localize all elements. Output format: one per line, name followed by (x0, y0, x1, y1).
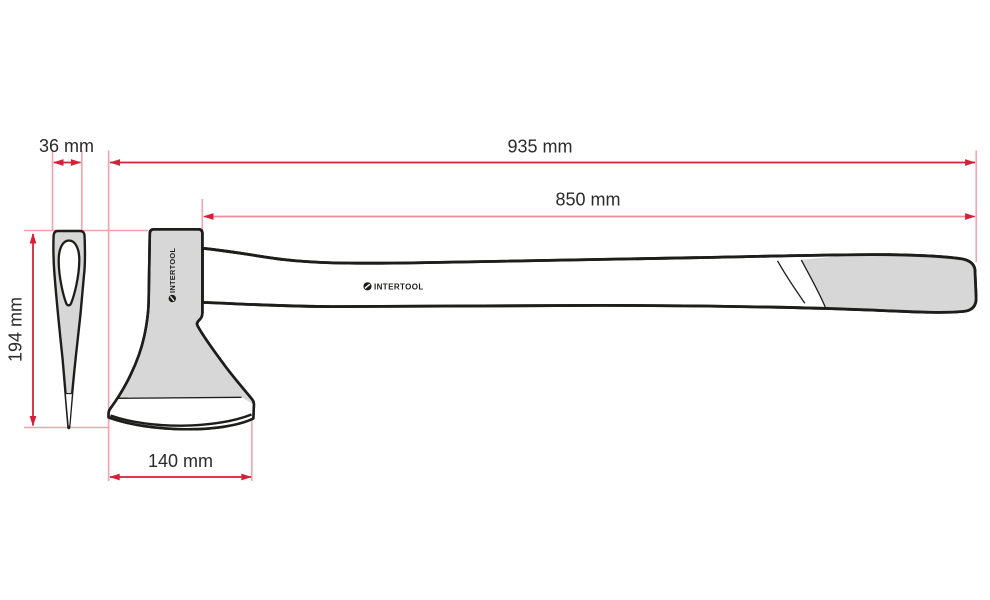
dimension-eye-width: 36 mm (39, 136, 94, 166)
arrowhead-left-icon (203, 213, 214, 220)
dimension-label-eye-width: 36 mm (39, 136, 94, 156)
dimension-label-blade-width: 140 mm (148, 451, 213, 471)
arrowhead-left-icon (53, 159, 64, 166)
arrowhead-up-icon (30, 233, 37, 244)
intertool-logo-text: INTERTOOL (374, 283, 424, 292)
arrowhead-down-icon (30, 416, 37, 427)
arrowhead-right-icon (965, 159, 976, 166)
dimension-handle-length: 850 mm (203, 190, 976, 220)
arrowhead-right-icon (71, 159, 82, 166)
arrowhead-right-icon (965, 213, 976, 220)
dimension-label-handle-length: 850 mm (555, 190, 620, 210)
dimension-label-head-height: 194 mm (6, 297, 26, 362)
axe-front-view (53, 231, 85, 428)
arrowhead-right-icon (241, 474, 252, 481)
arrowhead-left-icon (110, 159, 121, 166)
dimension-blade-width: 140 mm (109, 451, 252, 480)
arrowhead-left-icon (109, 474, 120, 481)
intertool-logo-text: INTERTOOL (168, 248, 177, 293)
handle-grip (802, 255, 977, 312)
axe-technical-drawing: 935 mm 850 mm 36 mm 194 mm 1 (0, 0, 990, 600)
drawing-canvas: 935 mm 850 mm 36 mm 194 mm 1 (0, 0, 990, 600)
dimension-head-height: 194 mm (6, 233, 37, 427)
axe-handle: INTERTOOL (202, 248, 976, 312)
dimension-total-length: 935 mm (110, 137, 976, 166)
dimension-label-total-length: 935 mm (507, 137, 572, 157)
